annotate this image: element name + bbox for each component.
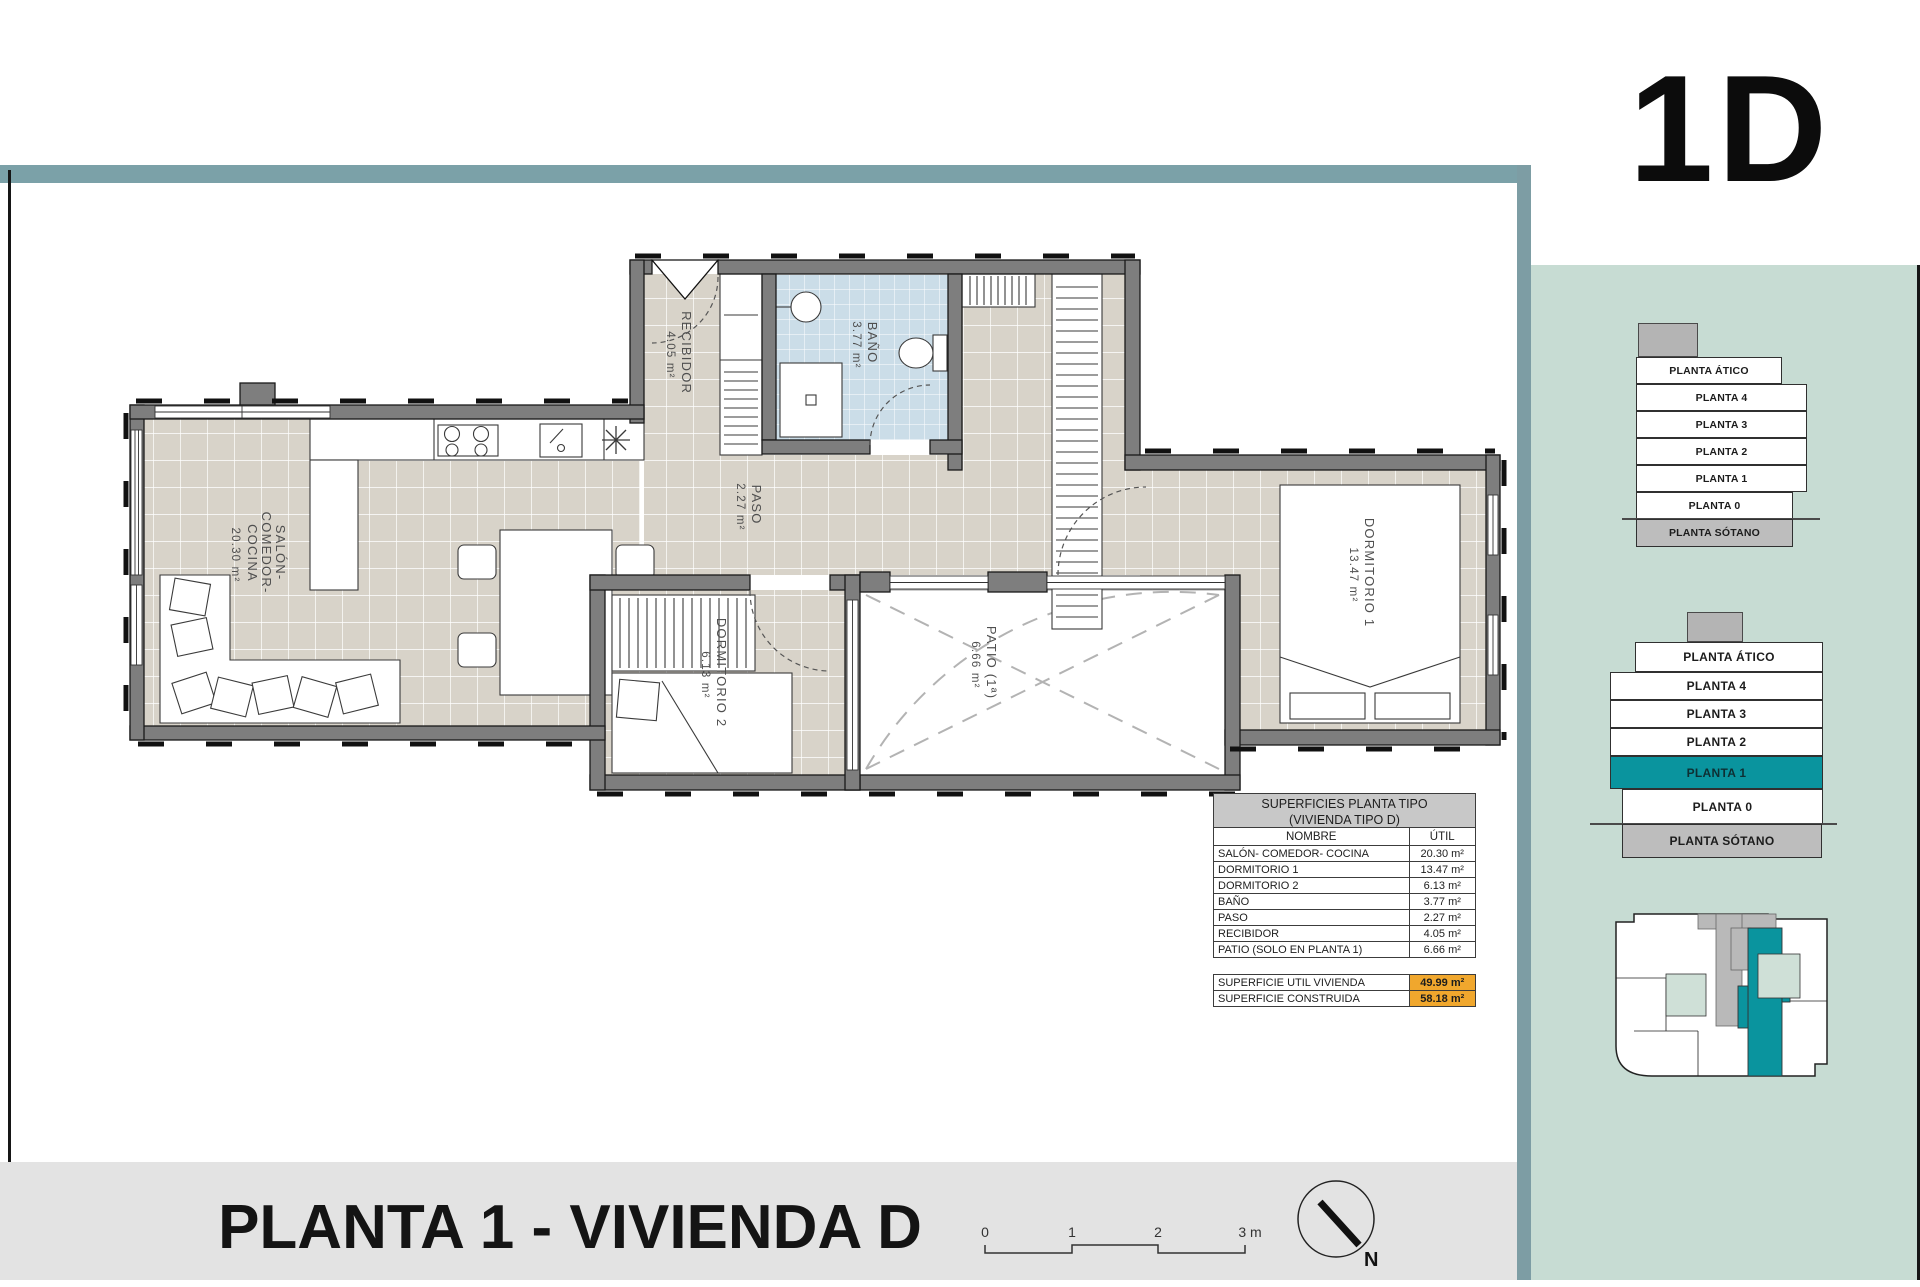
stack-floor-1-highlighted: PLANTA 1	[1610, 756, 1823, 789]
sidebar-accent-stripe	[1517, 165, 1531, 1280]
table-row: DORMITORIO 26.13 m²	[1213, 878, 1476, 894]
stack-floor-0: PLANTA 0	[1636, 492, 1793, 519]
toilet-tank	[933, 335, 947, 371]
table-summary-row: SUPERFICIE CONSTRUIDA58.18 m²	[1213, 990, 1476, 1007]
roof-box	[1638, 323, 1698, 357]
wall-pillar	[240, 383, 275, 405]
building-stack-small: PLANTA ÁTICO PLANTA 4 PLANTA 3 PLANTA 2 …	[1636, 323, 1856, 553]
stack-floor-3: PLANTA 3	[1636, 411, 1807, 438]
table-row: SALÓN- COMEDOR- COCINA20.30 m²	[1213, 846, 1476, 862]
site-key-plan	[1606, 906, 1836, 1091]
washbasin	[791, 292, 821, 322]
building-stack-highlighted: PLANTA ÁTICO PLANTA 4 PLANTA 3 PLANTA 2 …	[1610, 612, 1850, 862]
scale-tick-2: 2	[1154, 1224, 1162, 1240]
stack-floor-atico: PLANTA ÁTICO	[1636, 357, 1782, 384]
unit-code-label: 1D	[1540, 42, 1920, 217]
stack-floor-sotano: PLANTA SÓTANO	[1636, 519, 1793, 547]
scale-tick-1: 1	[1068, 1224, 1076, 1240]
stack-floor-2: PLANTA 2	[1636, 438, 1807, 465]
table-row: RECIBIDOR4.05 m²	[1213, 926, 1476, 942]
stack-floor-4: PLANTA 4	[1636, 384, 1807, 411]
hall-closet	[720, 274, 762, 455]
table-row: DORMITORIO 113.47 m²	[1213, 862, 1476, 878]
header-band	[0, 165, 1517, 183]
stack-floor-3: PLANTA 3	[1610, 700, 1823, 728]
surfaces-table-header: NOMBRE ÚTIL	[1213, 828, 1476, 846]
scale-tick-0: 0	[981, 1224, 989, 1240]
scale-tick-3: 3 m	[1238, 1224, 1261, 1240]
floor-plan: SALÓN- COMEDOR- COCINA 20.30 m² RECIBIDO…	[100, 245, 1510, 800]
table-summary-row: SUPERFICIE UTIL VIVIENDA49.99 m²	[1213, 974, 1476, 991]
stack-floor-2: PLANTA 2	[1610, 728, 1823, 756]
surfaces-table-title: SUPERFICIES PLANTA TIPO (VIVIENDA TIPO D…	[1213, 793, 1476, 828]
stack-floor-0: PLANTA 0	[1622, 789, 1823, 824]
stack-floor-sotano: PLANTA SÓTANO	[1622, 824, 1822, 858]
surfaces-table: SUPERFICIES PLANTA TIPO (VIVIENDA TIPO D…	[1213, 793, 1476, 1007]
north-label: N	[1364, 1249, 1378, 1271]
sheet-title: PLANTA 1 - VIVIENDA D	[170, 1192, 970, 1263]
table-row: PATIO (SOLO EN PLANTA 1)6.66 m²	[1213, 942, 1476, 958]
stack-floor-1: PLANTA 1	[1636, 465, 1807, 492]
sheet-left-border	[8, 170, 11, 1162]
table-row: BAÑO3.77 m²	[1213, 894, 1476, 910]
living-window	[131, 430, 142, 575]
table-gap	[1213, 958, 1476, 975]
roof-box	[1687, 612, 1743, 642]
scale-bar: 0 1 2 3 m	[960, 1185, 1280, 1275]
fridge-snowflake-icon	[602, 426, 630, 454]
stack-floor-atico: PLANTA ÁTICO	[1635, 642, 1823, 672]
toilet-bowl	[899, 338, 933, 368]
stack-floor-4: PLANTA 4	[1610, 672, 1823, 700]
table-row: PASO2.27 m²	[1213, 910, 1476, 926]
north-arrow: N	[1286, 1172, 1406, 1287]
